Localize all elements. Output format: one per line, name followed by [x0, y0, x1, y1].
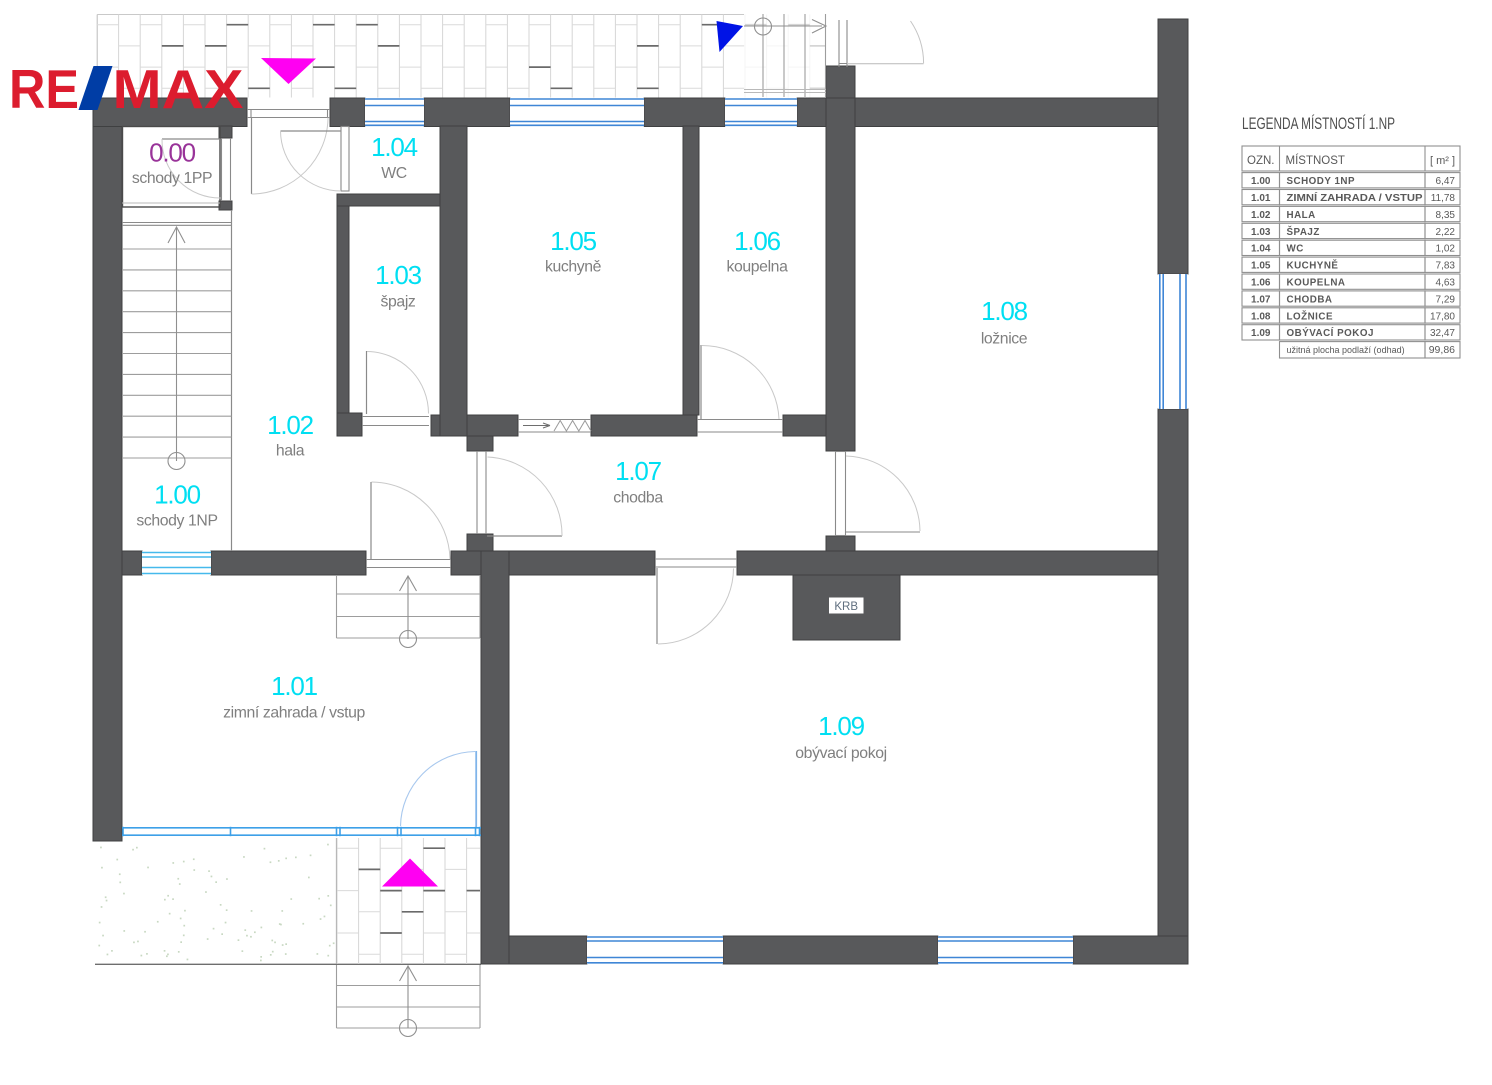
- svg-text:ŠPAJZ: ŠPAJZ: [1287, 226, 1320, 238]
- svg-text:1.02: 1.02: [1251, 210, 1271, 221]
- svg-text:1.05: 1.05: [550, 226, 597, 256]
- svg-text:0.00: 0.00: [149, 138, 196, 168]
- svg-text:6,47: 6,47: [1436, 176, 1456, 187]
- svg-text:OZN.: OZN.: [1247, 155, 1274, 167]
- svg-text:1.04: 1.04: [1251, 244, 1271, 255]
- svg-text:8,35: 8,35: [1436, 210, 1456, 221]
- svg-text:1.01: 1.01: [1251, 193, 1271, 204]
- svg-text:KRB: KRB: [834, 601, 858, 613]
- svg-text:1.02: 1.02: [267, 410, 314, 440]
- svg-text:[ m² ]: [ m² ]: [1430, 155, 1455, 167]
- svg-text:1.06: 1.06: [1251, 277, 1271, 288]
- svg-text:schody 1PP: schody 1PP: [132, 170, 212, 187]
- svg-text:4,63: 4,63: [1436, 277, 1456, 288]
- svg-text:1.08: 1.08: [981, 296, 1028, 326]
- svg-text:1.09: 1.09: [1251, 328, 1271, 339]
- svg-text:CHODBA: CHODBA: [1287, 294, 1333, 305]
- svg-text:HALA: HALA: [1287, 210, 1316, 221]
- svg-text:KOUPELNA: KOUPELNA: [1287, 277, 1346, 288]
- svg-text:1.00: 1.00: [1251, 176, 1271, 187]
- svg-text:špajz: špajz: [381, 294, 416, 311]
- svg-text:1.07: 1.07: [1251, 294, 1271, 305]
- svg-text:obývací pokoj: obývací pokoj: [795, 745, 886, 762]
- svg-text:kuchyně: kuchyně: [545, 259, 602, 276]
- svg-text:užitná plocha podlaží (odhad): užitná plocha podlaží (odhad): [1287, 345, 1405, 355]
- svg-text:ložnice: ložnice: [981, 331, 1028, 348]
- svg-text:1.04: 1.04: [371, 132, 418, 162]
- svg-text:LOŽNICE: LOŽNICE: [1287, 310, 1334, 322]
- svg-text:WC: WC: [381, 165, 407, 182]
- svg-text:7,29: 7,29: [1436, 294, 1456, 305]
- svg-text:7,83: 7,83: [1436, 261, 1456, 272]
- svg-text:chodba: chodba: [613, 490, 663, 507]
- svg-text:17,80: 17,80: [1430, 311, 1455, 322]
- svg-text:1.01: 1.01: [271, 671, 318, 701]
- svg-text:1.00: 1.00: [154, 480, 201, 510]
- svg-text:RE: RE: [9, 58, 79, 120]
- svg-text:MÍSTNOST: MÍSTNOST: [1286, 154, 1345, 167]
- svg-text:SCHODY 1NP: SCHODY 1NP: [1287, 176, 1356, 187]
- svg-text:WC: WC: [1287, 244, 1304, 255]
- svg-text:zimní zahrada / vstup: zimní zahrada / vstup: [223, 705, 365, 722]
- svg-text:2,22: 2,22: [1436, 227, 1456, 238]
- svg-text:1.07: 1.07: [615, 456, 662, 486]
- svg-text:KUCHYNĚ: KUCHYNĚ: [1287, 260, 1339, 272]
- svg-text:1.03: 1.03: [1251, 227, 1271, 238]
- svg-text:1.06: 1.06: [734, 226, 781, 256]
- svg-text:1.09: 1.09: [818, 711, 865, 741]
- svg-text:1,02: 1,02: [1436, 244, 1456, 255]
- svg-text:schody 1NP: schody 1NP: [136, 513, 217, 530]
- svg-text:32,47: 32,47: [1430, 328, 1455, 339]
- svg-text:LEGENDA MÍSTNOSTÍ 1.NP: LEGENDA MÍSTNOSTÍ 1.NP: [1242, 114, 1395, 133]
- svg-text:ZIMNÍ ZAHRADA / VSTUP: ZIMNÍ ZAHRADA / VSTUP: [1287, 192, 1424, 204]
- svg-text:11,78: 11,78: [1431, 193, 1456, 204]
- svg-text:MAX: MAX: [113, 58, 244, 120]
- svg-text:99,86: 99,86: [1429, 344, 1455, 356]
- svg-text:1.08: 1.08: [1251, 311, 1271, 322]
- svg-text:OBÝVACÍ POKOJ: OBÝVACÍ POKOJ: [1287, 327, 1374, 339]
- svg-text:1.05: 1.05: [1251, 261, 1271, 272]
- svg-text:koupelna: koupelna: [727, 259, 789, 276]
- svg-text:hala: hala: [276, 443, 305, 460]
- svg-text:1.03: 1.03: [375, 260, 422, 290]
